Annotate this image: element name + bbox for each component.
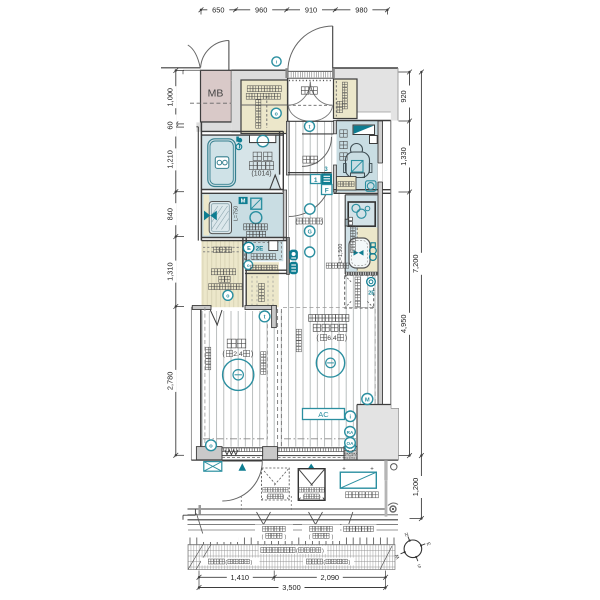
svg-text:G: G	[308, 229, 312, 235]
svg-text:(: (	[225, 560, 227, 566]
svg-text:t: t	[264, 315, 266, 321]
svg-text:910: 910	[305, 5, 317, 14]
svg-text:OA: OA	[347, 441, 355, 446]
svg-text:7,200: 7,200	[411, 255, 420, 274]
svg-text:650: 650	[212, 5, 224, 14]
svg-text:1,410: 1,410	[231, 573, 250, 582]
svg-text:t: t	[309, 124, 311, 130]
svg-text:L=750: L=750	[234, 206, 240, 221]
svg-text:960: 960	[255, 5, 267, 14]
svg-text:840: 840	[165, 208, 174, 220]
svg-text:1,310: 1,310	[165, 262, 174, 281]
svg-text:M: M	[241, 199, 246, 205]
svg-text:1: 1	[314, 177, 318, 184]
svg-text:1,210: 1,210	[165, 150, 174, 169]
svg-text:): )	[348, 560, 350, 566]
svg-text:4,950: 4,950	[399, 315, 408, 334]
svg-text:o: o	[275, 111, 278, 117]
svg-text:980: 980	[355, 5, 367, 14]
svg-text:+: +	[342, 467, 346, 473]
svg-text:1,200: 1,200	[411, 478, 420, 497]
svg-text:2E: 2E	[368, 291, 375, 297]
svg-text:(1014): (1014)	[251, 171, 271, 178]
svg-text:2,780: 2,780	[165, 372, 174, 391]
svg-text:M: M	[365, 397, 370, 403]
svg-text:o: o	[226, 293, 229, 299]
svg-text:): )	[251, 351, 253, 358]
svg-text:1,000: 1,000	[165, 88, 174, 107]
svg-text:(: (	[296, 548, 298, 554]
svg-text:6.4: 6.4	[327, 335, 337, 342]
svg-text:MB: MB	[208, 88, 224, 100]
svg-text:+: +	[370, 467, 374, 473]
svg-text:1,330: 1,330	[399, 147, 408, 166]
svg-text:60: 60	[165, 121, 174, 129]
svg-text:): )	[345, 335, 347, 342]
svg-text:o: o	[209, 444, 213, 450]
svg-text:3,500: 3,500	[282, 583, 301, 592]
svg-text:RA: RA	[347, 430, 354, 435]
svg-text:): )	[250, 560, 252, 566]
svg-text:920: 920	[399, 90, 408, 102]
svg-text:2.4: 2.4	[233, 351, 243, 358]
svg-text:F: F	[325, 187, 329, 194]
svg-text:(: (	[323, 560, 325, 566]
svg-text:L=1,500: L=1,500	[338, 244, 344, 264]
svg-text:o: o	[247, 263, 250, 268]
svg-text:i: i	[276, 59, 277, 65]
svg-text:AC: AC	[318, 410, 329, 419]
svg-text:): )	[321, 219, 323, 226]
svg-text:E: E	[247, 246, 251, 252]
svg-text:2,090: 2,090	[321, 573, 340, 582]
svg-text:2E: 2E	[256, 246, 264, 253]
svg-text:): )	[322, 548, 324, 554]
